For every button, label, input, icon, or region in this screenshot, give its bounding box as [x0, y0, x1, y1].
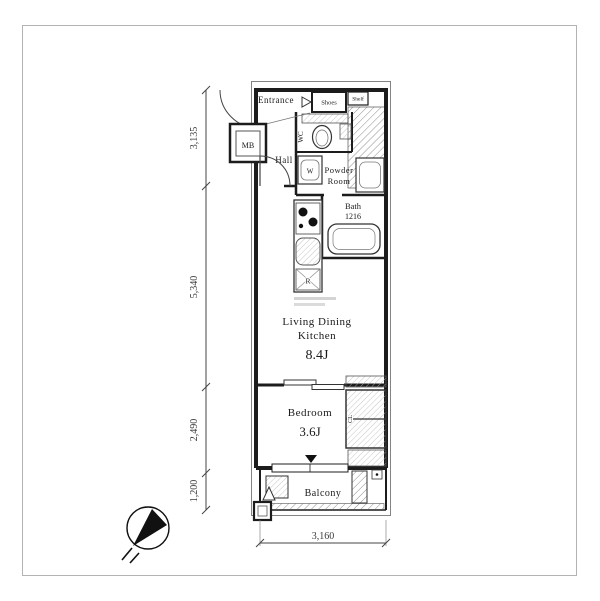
- sink-icon: [296, 238, 320, 265]
- ldk-line1: Living Dining: [282, 316, 351, 328]
- sliding-door: [284, 380, 344, 390]
- dim-bottom-width: 3,160: [312, 531, 335, 542]
- dim-left-2: 5,340: [189, 276, 200, 299]
- washbasin: W: [298, 156, 322, 184]
- bedroom-name: Bedroom: [288, 407, 332, 419]
- powder-room-label: Powder Room: [325, 165, 354, 186]
- balcony: Balcony: [260, 468, 386, 510]
- closet-bottom-strip: [348, 450, 386, 466]
- dim-left-1: 3,135: [189, 127, 200, 150]
- entrance-label: Entrance: [258, 95, 294, 105]
- burner-icon: [299, 224, 303, 228]
- shoes-label: Shoes: [321, 100, 337, 107]
- powder-room-line1: Powder: [325, 165, 354, 175]
- entrance-arrow-icon: [302, 97, 311, 107]
- kitchen-counter: R: [294, 200, 322, 292]
- ldk-label: Living Dining Kitchen 8.4J: [282, 316, 351, 363]
- toilet-icon: [313, 126, 332, 149]
- balcony-window: [272, 464, 348, 472]
- page-frame: [23, 26, 577, 576]
- washing-machine-pan: [356, 158, 384, 192]
- vent-dot: [376, 473, 379, 476]
- north-arrow-icon: [122, 507, 169, 563]
- balcony-label: Balcony: [305, 488, 342, 499]
- closet-top-strip: [346, 376, 386, 387]
- closet: CL: [346, 376, 386, 466]
- ldk-size-label: 8.4J: [306, 348, 330, 363]
- faint-print-marks: [294, 297, 336, 306]
- shelf-label: Shelf: [352, 96, 364, 103]
- shoe-cabinet: Shoes: [312, 92, 346, 112]
- dimension-line-bottom: 3,160: [256, 520, 390, 547]
- refrigerator-label: R: [305, 277, 310, 286]
- dimension-labels-left: 3,135 5,340 2,490 1,200: [189, 127, 200, 503]
- balcony-rail-hatch: [262, 504, 384, 510]
- hall-label: Hall: [275, 155, 293, 165]
- dim-left-4: 1,200: [189, 480, 200, 503]
- toilet-room: WC: [297, 114, 351, 149]
- dim-left-3: 2,490: [189, 419, 200, 442]
- bath-room: Bath 1216: [328, 201, 380, 254]
- powder-room-line2: Room: [328, 176, 351, 186]
- dimension-line-left: [202, 86, 210, 514]
- burner-icon: [309, 218, 318, 227]
- opening-marker-icon: [305, 455, 317, 463]
- bath-size-label: 1216: [345, 212, 361, 221]
- washbasin-label: W: [307, 168, 314, 176]
- front-door-arc: [220, 90, 258, 128]
- floor-plan-canvas: Entrance MB Shoes Shelf Hall WC W: [0, 0, 600, 601]
- closet-label: CL: [347, 415, 354, 423]
- balcony-partition: [352, 471, 367, 503]
- ldk-line2: Kitchen: [298, 330, 336, 342]
- meter-box-label: MB: [242, 141, 254, 150]
- entrance-area: Entrance: [220, 90, 311, 128]
- bath-label: Bath: [345, 201, 362, 211]
- toilet-tank: [340, 124, 351, 139]
- burner-icon: [299, 208, 308, 217]
- floor-plan-page: Entrance MB Shoes Shelf Hall WC W: [0, 0, 600, 601]
- toilet-shelf: [302, 114, 348, 123]
- shelf-box: Shelf: [348, 92, 368, 105]
- bedroom-size-label: 3.6J: [299, 424, 320, 439]
- pipe-box: [254, 502, 271, 520]
- bedroom-label: Bedroom 3.6J: [288, 407, 332, 439]
- wc-label: WC: [297, 131, 305, 143]
